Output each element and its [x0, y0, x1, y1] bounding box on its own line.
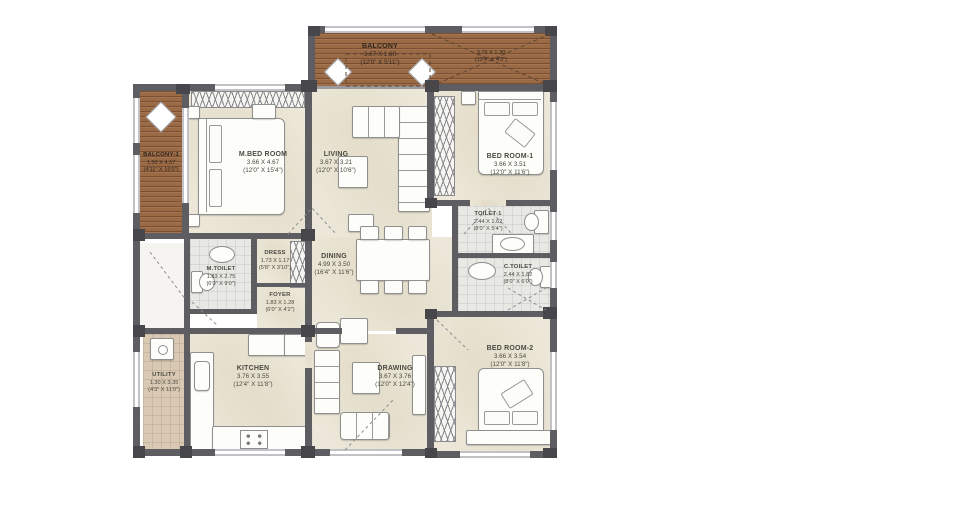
room-name: DRAWING: [364, 364, 426, 373]
room-dim-metric: 4.99 X 3.50: [302, 261, 366, 269]
room-dim-metric: 3.66 X 3.54: [472, 353, 548, 361]
room-dim-metric: 1.83 X 2.75: [192, 274, 250, 281]
room-name: BALCONY-1: [137, 152, 185, 160]
room-label-balcony-1: BALCONY-1 1.50 X 4.57 (4'11" X 15'0"): [137, 152, 185, 174]
room-dim-imperial: (6'0" X 9'0"): [192, 281, 250, 288]
door-swing: [288, 208, 336, 234]
room-dim-metric: 3.66 X 4.67: [225, 159, 301, 167]
door-swing: [192, 302, 218, 326]
room-dim-metric: 2.44 X 1.82: [490, 272, 546, 279]
room-dim-imperial: (12'0" X 15'4"): [225, 167, 301, 175]
room-dim-imperial: (4'11" X 15'0"): [137, 167, 185, 174]
door-swing: [437, 320, 468, 350]
room-dim-imperial: (12'0" X 12'4"): [364, 381, 426, 389]
room-dim-imperial: (4'3" X 11'0"): [142, 387, 186, 394]
room-name: M.BED ROOM: [225, 150, 301, 159]
room-label-balcony-right: 3.76 X 1.30 (12'4" X 4'3"): [458, 50, 524, 65]
shower-cross: [508, 288, 546, 310]
room-dim-metric: 3.76 X 3.55: [222, 373, 284, 381]
room-name: LIVING: [300, 150, 372, 159]
room-name: DINING: [302, 252, 366, 261]
room-dim-metric: 3.76 X 1.30: [458, 50, 524, 57]
room-name: C.TOILET: [490, 264, 546, 272]
room-label-m-toilet: M.TOILET 1.83 X 2.75 (6'0" X 9'0"): [192, 266, 250, 288]
room-dim-imperial: (12'4" X 4'3"): [458, 57, 524, 64]
room-dim-imperial: (5'8" X 3'10"): [254, 265, 296, 272]
room-dim-imperial: (8'0" X 6'0"): [490, 279, 546, 286]
room-label-foyer: FOYER 1.83 X 1.28 (6'0" X 4'2"): [252, 292, 308, 314]
room-dim-imperial: (12'0" X 11'8"): [472, 361, 548, 369]
room-label-dining: DINING 4.99 X 3.50 (16'4" X 11'6"): [302, 252, 366, 277]
room-dim-metric: 3.67 X 3.21: [300, 159, 372, 167]
room-label-c-toilet: C.TOILET 2.44 X 1.82 (8'0" X 6'0"): [490, 264, 546, 286]
room-name: DRESS: [254, 250, 296, 258]
room-label-bed-room-1: BED ROOM-1 3.66 X 3.51 (12'0" X 11'6"): [472, 152, 548, 177]
room-dim-imperial: (12'0" X 10'6"): [300, 167, 372, 175]
room-name: KITCHEN: [222, 364, 284, 373]
room-dim-imperial: (12'0" X 11'6"): [472, 169, 548, 177]
room-dim-imperial: (16'4" X 11'6"): [302, 269, 366, 277]
room-name: TOILET-1: [460, 211, 516, 219]
room-dim-metric: 1.30 X 3.35: [142, 380, 186, 387]
room-name: BED ROOM-1: [472, 152, 548, 161]
room-label-dress: DRESS 1.73 X 1.17 (5'8" X 3'10"): [254, 250, 296, 272]
room-name: BALCONY: [340, 42, 420, 51]
room-label-bed-room-2: BED ROOM-2 3.66 X 3.54 (12'0" X 11'8"): [472, 344, 548, 369]
room-name: BED ROOM-2: [472, 344, 548, 353]
room-dim-metric: 3.66 X 3.51: [472, 161, 548, 169]
room-name: FOYER: [252, 292, 308, 300]
room-dim-imperial: (12'0" X 5'11"): [340, 59, 420, 67]
room-label-balcony: BALCONY 3.67 X 1.80 (12'0" X 5'11"): [340, 42, 420, 67]
door-swing: [345, 400, 393, 450]
room-label-toilet-1: TOILET-1 2.44 X 1.62 (8'0" X 5'4"): [460, 211, 516, 233]
room-dim-imperial: (6'0" X 4'2"): [252, 307, 308, 314]
room-name: M.TOILET: [192, 266, 250, 274]
floor-plan: BALCONY 3.67 X 1.80 (12'0" X 5'11") 3.76…: [0, 0, 975, 527]
room-dim-metric: 1.83 X 1.28: [252, 300, 308, 307]
room-label-utility: UTILITY 1.30 X 3.35 (4'3" X 11'0"): [142, 372, 186, 394]
room-label-m-bed-room: M.BED ROOM 3.66 X 4.67 (12'0" X 15'4"): [225, 150, 301, 175]
room-name: UTILITY: [142, 372, 186, 380]
room-dim-imperial: (8'0" X 5'4"): [460, 226, 516, 233]
room-dim-metric: 1.73 X 1.17: [254, 258, 296, 265]
room-label-kitchen: KITCHEN 3.76 X 3.55 (12'4" X 11'8"): [222, 364, 284, 389]
room-label-drawing: DRAWING 3.67 X 3.76 (12'0" X 12'4"): [364, 364, 426, 389]
room-dim-metric: 1.50 X 4.57: [137, 160, 185, 167]
room-dim-imperial: (12'4" X 11'8"): [222, 381, 284, 389]
room-dim-metric: 3.67 X 3.76: [364, 373, 426, 381]
door-swing: [150, 252, 186, 300]
room-label-living: LIVING 3.67 X 3.21 (12'0" X 10'6"): [300, 150, 372, 175]
room-dim-metric: 2.44 X 1.62: [460, 219, 516, 226]
annotation-overlay: [0, 0, 975, 527]
room-dim-metric: 3.67 X 1.80: [340, 51, 420, 59]
